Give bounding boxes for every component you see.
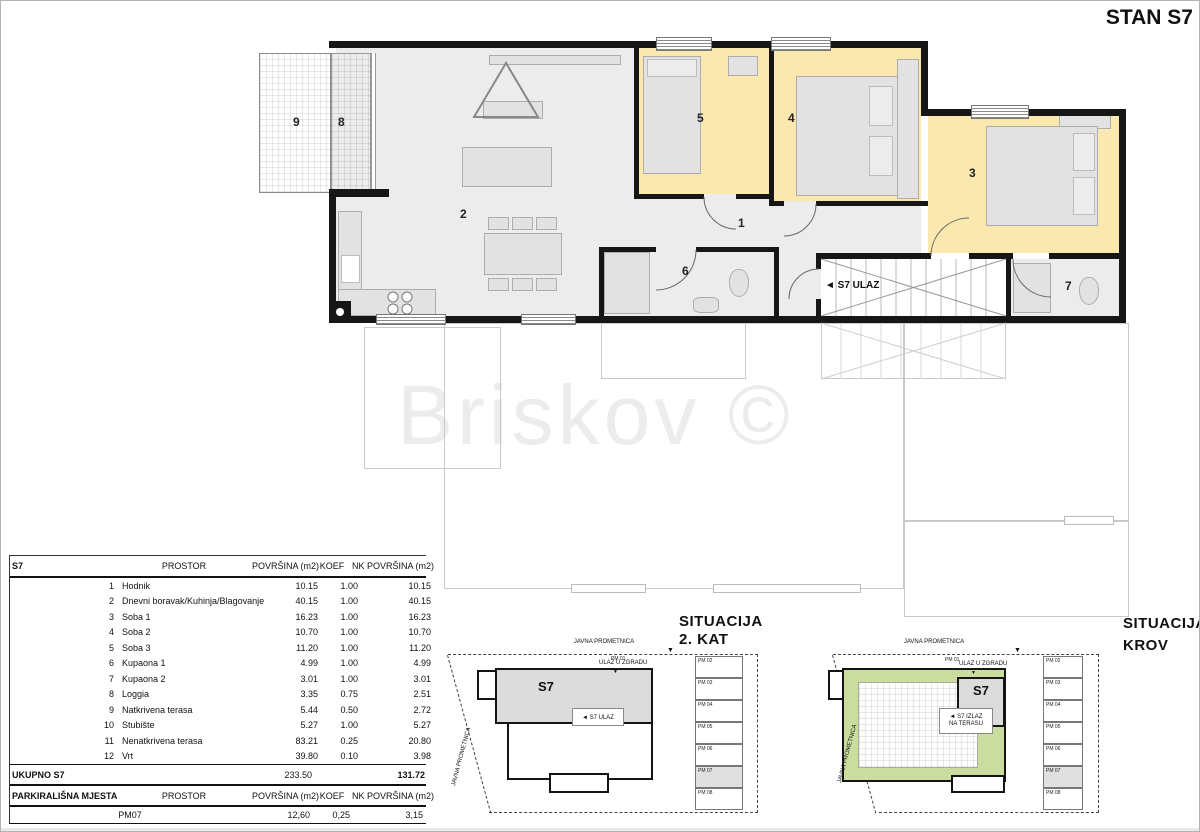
- col-nk: NK POVRŠINA (m2): [352, 561, 425, 571]
- parking-stall-label: PM 07: [1046, 768, 1060, 774]
- wall: [921, 41, 928, 116]
- parking-stall: PM 05: [1043, 722, 1083, 744]
- lower-window: [571, 584, 646, 593]
- pm01-label: PM 01: [945, 657, 959, 663]
- parking-stall: PM 05: [695, 722, 743, 744]
- parking-stall-label: PM 05: [698, 724, 712, 730]
- shower-bath6: [604, 252, 650, 314]
- parking-stall: PM 03: [695, 678, 743, 700]
- parking-stall: PM 02: [695, 656, 743, 678]
- lower-floor-room: [601, 323, 746, 379]
- parking-stall-label: PM 06: [1046, 746, 1060, 752]
- situation-krov-title-1: SITUACIJA: [1123, 615, 1200, 632]
- chair: [536, 217, 557, 230]
- wall: [816, 253, 931, 259]
- parcel-boundary: [879, 812, 1099, 813]
- parking-stall: PM 03: [1043, 678, 1083, 700]
- parking-table-rows: PM0712,600,253,15: [10, 807, 426, 824]
- kitchen-counter: [338, 289, 436, 316]
- window: [971, 105, 1029, 119]
- parcel-boundary: [833, 654, 1099, 655]
- wall: [329, 41, 928, 48]
- wall: [816, 257, 821, 269]
- tv-bench: [489, 55, 621, 65]
- kat-parking-column: PM 02PM 03PM 04PM 05PM 06PM 07PM 08: [695, 656, 743, 810]
- chair: [512, 217, 533, 230]
- wall: [816, 299, 821, 323]
- parking-stall: PM 06: [695, 744, 743, 766]
- side-table: [728, 56, 758, 76]
- chair: [488, 217, 509, 230]
- area-table-header: S7 PROSTOR POVRŠINA (m2) KOEF NK POVRŠIN…: [10, 556, 426, 578]
- krov-building-stub: [951, 775, 1005, 793]
- area-table-row: 12Vrt39.800.103.98: [10, 749, 426, 765]
- window: [656, 37, 712, 51]
- column-dot: [336, 308, 344, 316]
- sofa: [462, 147, 552, 187]
- col-povrsina: POVRŠINA (m2): [252, 561, 312, 571]
- room-label-hallway: 1: [738, 216, 745, 230]
- lower-window: [713, 584, 861, 593]
- parking-stall-label: PM 02: [698, 658, 712, 664]
- chair: [488, 278, 509, 291]
- open-terrace-hatch: [364, 327, 501, 469]
- parking-table-header: PARKIRALIŠNA MJESTA PROSTOR POVRŠINA (m2…: [10, 786, 426, 807]
- sink-bath6: [693, 297, 719, 313]
- parcel-boundary: [448, 654, 758, 655]
- window: [376, 314, 446, 325]
- krov-exit-line-2: NA TERASU: [940, 721, 992, 728]
- wall: [774, 247, 779, 323]
- unit-label: S7: [10, 561, 116, 571]
- area-table-row: 5Soba 311.201.0011.20: [10, 640, 426, 656]
- parking-stall: PM 08: [695, 788, 743, 810]
- wall: [634, 48, 639, 196]
- area-table-row: 11Nenatkrivena terasa83.210.2520.80: [10, 733, 426, 749]
- wardrobe-room4: [897, 59, 919, 199]
- room-label-room3: 5: [697, 111, 704, 125]
- arrow-down-icon: ▼: [1014, 647, 1021, 654]
- room-label-room2: 4: [788, 111, 795, 125]
- parking-stall-label: PM 05: [1046, 724, 1060, 730]
- room-label-room1: 3: [969, 166, 976, 180]
- open-terrace-hatch: [904, 521, 1129, 617]
- parcel-boundary: [1098, 654, 1099, 813]
- arrow-down-icon: ▼: [971, 670, 976, 677]
- parking-stall-label: PM 02: [1046, 658, 1060, 664]
- krov-unit-label: S7: [973, 683, 989, 698]
- parking-stall: PM 07: [1043, 766, 1083, 788]
- area-table-row: 7Kupaona 23.011.003.01: [10, 671, 426, 687]
- road-label-side: JAVNA PROMETNICA: [451, 698, 481, 787]
- wall: [1119, 109, 1126, 323]
- page-title: STAN S7: [1106, 6, 1193, 30]
- area-table-row: 10Stubište5.271.005.27: [10, 718, 426, 734]
- glass-wall: [371, 53, 376, 193]
- room-label-terrace: 9: [293, 115, 300, 129]
- chair: [536, 278, 557, 291]
- area-table-row: 9Natkrivena terasa5.440.502.72: [10, 702, 426, 718]
- floor-plan-sheet: STAN S7 Briskov ©: [0, 0, 1200, 832]
- easel-sheet: [483, 101, 543, 119]
- dining-table: [484, 233, 562, 275]
- area-table-row: 2Dnevni boravak/Kuhinja/Blagovanje40.151…: [10, 594, 426, 610]
- parking-stall-label: PM 03: [1046, 680, 1060, 686]
- parking-stall-label: PM 08: [698, 790, 712, 796]
- krov-unit-exit-box: ◄ S7 IZLAZ NA TERASU: [939, 708, 993, 734]
- krov-parking-column: PM 02PM 03PM 04PM 05PM 06PM 07PM 08: [1043, 656, 1083, 810]
- parking-col-prostor: PROSTOR: [116, 791, 252, 801]
- kitchen-sink: [341, 255, 360, 283]
- total-nk: 131.72: [352, 770, 425, 780]
- wall: [599, 247, 604, 323]
- area-table-row: 1Hodnik10.151.0010.15: [10, 578, 426, 594]
- wall: [329, 189, 389, 197]
- toilet-bath6: [729, 269, 749, 297]
- arrow-down-icon: ▼: [667, 647, 674, 654]
- parking-stall-label: PM 04: [1046, 702, 1060, 708]
- krov-building-entrance: ULAZ U ZGRADU: [959, 661, 1007, 668]
- toilet-bath7: [1079, 277, 1099, 305]
- wall: [774, 201, 784, 206]
- wall: [816, 201, 928, 206]
- area-table-row: 4Soba 210.701.0010.70: [10, 625, 426, 641]
- wall: [769, 48, 774, 206]
- area-table: S7 PROSTOR POVRŠINA (m2) KOEF NK POVRŠIN…: [9, 555, 426, 824]
- parking-stall-label: PM 06: [698, 746, 712, 752]
- pillow: [1073, 133, 1095, 171]
- kat-building-lower: [507, 722, 653, 780]
- kat-building-stub: [549, 773, 609, 793]
- pillow: [1073, 177, 1095, 215]
- unit-entrance-label: ◄ S7 ULAZ: [825, 280, 879, 291]
- parking-col-nk: NK POVRŠINA (m2): [352, 791, 425, 801]
- area-table-row: 8Loggia3.350.752.51: [10, 687, 426, 703]
- kat-unit-entrance-box: ◄ S7 ULAZ: [572, 708, 624, 726]
- room-label-bath1: 6: [682, 264, 689, 278]
- chair: [512, 278, 533, 291]
- parking-stall-label: PM 03: [698, 680, 712, 686]
- room-label-living: 2: [460, 207, 467, 221]
- col-koef: KOEF: [312, 561, 352, 571]
- parking-stall: PM 04: [1043, 700, 1083, 722]
- parking-stall: PM 02: [1043, 656, 1083, 678]
- pillow: [647, 59, 697, 77]
- col-prostor: PROSTOR: [116, 561, 252, 571]
- wall: [1049, 253, 1119, 259]
- kat-unit-label: S7: [538, 679, 554, 694]
- parking-stall: PM 07: [695, 766, 743, 788]
- situation-kat-title-1: SITUACIJA: [679, 613, 763, 630]
- parking-col-koef: KOEF: [312, 791, 352, 801]
- pillow: [869, 86, 893, 126]
- total-label: UKUPNO S7: [10, 770, 252, 780]
- wall: [736, 194, 774, 199]
- parking-stall-label: PM 04: [698, 702, 712, 708]
- parking-title: PARKIRALIŠNA MJESTA: [10, 791, 116, 801]
- room-label-bath2: 7: [1065, 279, 1072, 293]
- lower-window: [1064, 516, 1114, 525]
- pillow: [869, 136, 893, 176]
- area-table-row: 3Soba 116.231.0016.23: [10, 609, 426, 625]
- parking-stall: PM 08: [1043, 788, 1083, 810]
- parking-stall: PM 06: [1043, 744, 1083, 766]
- parcel-boundary: [489, 812, 758, 813]
- road-label-top: JAVNA PROMETNICA: [879, 639, 989, 646]
- wall: [1006, 257, 1011, 323]
- parking-stall-label: PM 07: [698, 768, 712, 774]
- parking-table-row: PM0712,600,253,15: [10, 807, 426, 824]
- wall: [634, 194, 704, 199]
- arrow-down-icon: ▼: [613, 669, 618, 676]
- situation-krov-title-2: KROV: [1123, 637, 1168, 654]
- area-table-total: UKUPNO S7 233.50 131.72: [10, 764, 426, 786]
- window: [771, 37, 831, 51]
- parking-stall: PM 04: [695, 700, 743, 722]
- road-label-top: JAVNA PROMETNICA: [549, 639, 659, 646]
- area-table-row: 6Kupaona 14.991.004.99: [10, 656, 426, 672]
- loggia-8: [331, 53, 371, 193]
- situation-kat-title-2: 2. KAT: [679, 631, 728, 648]
- wall: [696, 247, 779, 252]
- parking-stall-label: PM 08: [1046, 790, 1060, 796]
- parking-col-povrsina: POVRŠINA (m2): [252, 791, 312, 801]
- krov-exit-line-1: ◄ S7 IZLAZ: [940, 714, 992, 721]
- wall: [599, 247, 656, 252]
- area-table-rows: 1Hodnik10.151.0010.152Dnevni boravak/Kuh…: [10, 578, 426, 764]
- lower-stair: [821, 323, 1006, 379]
- room-label-loggia: 8: [338, 115, 345, 129]
- shower-bath7: [1013, 263, 1051, 313]
- total-area: 233.50: [252, 770, 312, 780]
- window: [521, 314, 576, 325]
- bottom-strip: [1, 828, 1200, 832]
- kat-building-entrance: ULAZ U ZGRADU: [599, 660, 647, 667]
- parcel-boundary: [757, 654, 758, 813]
